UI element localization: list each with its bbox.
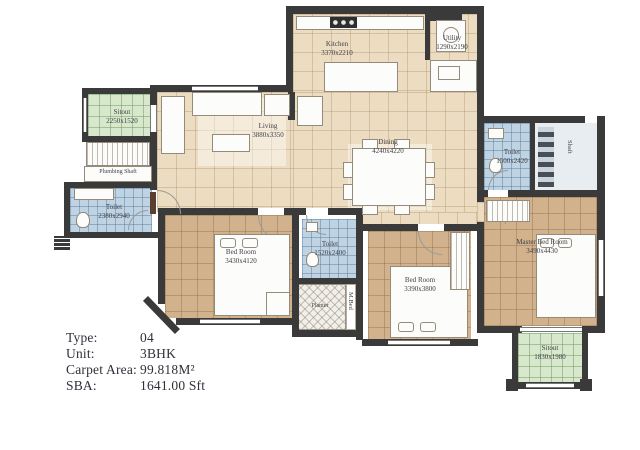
info-row-carpet-area: Carpet Area: 99.818M² xyxy=(66,362,205,378)
info-label: Carpet Area: xyxy=(66,362,140,378)
wall xyxy=(298,278,362,284)
wall xyxy=(477,116,585,123)
window xyxy=(388,340,450,345)
french-door xyxy=(150,105,157,132)
corridor-floor xyxy=(362,212,477,224)
chair xyxy=(394,139,410,149)
wall xyxy=(356,212,363,340)
wall xyxy=(64,182,70,238)
shaft-hatch xyxy=(538,127,554,187)
entry-step xyxy=(54,236,70,250)
wall xyxy=(530,123,535,190)
stove-icon xyxy=(330,17,357,28)
wall xyxy=(292,330,362,337)
chair xyxy=(343,184,353,200)
kitchen-island xyxy=(324,62,398,92)
kitchen-counter xyxy=(296,16,424,30)
planter-floor xyxy=(298,284,346,330)
plumbing-shaft-box xyxy=(84,166,152,182)
sink xyxy=(438,66,460,80)
window xyxy=(83,98,87,132)
armchair xyxy=(264,94,290,116)
sitout-left-floor xyxy=(88,94,150,136)
window xyxy=(200,319,260,324)
wall xyxy=(477,326,522,333)
info-row-type: Type: 04 xyxy=(66,330,205,346)
pillow xyxy=(220,238,236,248)
unit-info: Type: 04 Unit: 3BHK Carpet Area: 99.818M… xyxy=(66,330,205,394)
door-gap xyxy=(418,224,444,231)
chair xyxy=(425,184,435,200)
info-row-sba: SBA: 1641.00 Sft xyxy=(66,378,205,394)
fridge xyxy=(297,96,323,126)
wall xyxy=(64,232,160,238)
sofa xyxy=(192,92,262,116)
sliding-door xyxy=(520,327,582,332)
chair xyxy=(343,162,353,178)
pillow xyxy=(420,322,436,332)
wardrobe xyxy=(450,232,470,290)
chair xyxy=(362,205,378,215)
washbasin xyxy=(488,128,504,139)
window xyxy=(526,383,574,388)
info-value: 04 xyxy=(140,330,205,346)
shoe-rack xyxy=(86,142,150,166)
coffee-table xyxy=(212,134,250,152)
info-value: 99.818M² xyxy=(140,362,205,378)
pillow xyxy=(540,238,554,248)
chair xyxy=(425,162,435,178)
washer-icon xyxy=(443,27,459,43)
toilet-wc xyxy=(489,158,502,173)
vanity-counter xyxy=(74,188,114,200)
window xyxy=(598,240,604,296)
entry-door-leaf xyxy=(150,192,156,214)
toilet-wc xyxy=(306,252,319,267)
post xyxy=(506,379,518,391)
wall xyxy=(582,326,605,333)
info-row-unit: Unit: 3BHK xyxy=(66,346,205,362)
info-label: Type: xyxy=(66,330,140,346)
info-label: SBA: xyxy=(66,378,140,394)
info-value: 1641.00 Sft xyxy=(140,378,205,394)
dresser xyxy=(266,292,290,316)
pillow xyxy=(242,238,258,248)
window xyxy=(192,86,258,91)
master-entry-floor xyxy=(477,202,484,222)
info-value: 3BHK xyxy=(140,346,205,362)
wall xyxy=(158,208,165,304)
door-gap xyxy=(488,190,508,197)
wall xyxy=(292,208,299,337)
info-label: Unit: xyxy=(66,346,140,362)
wall xyxy=(82,88,152,94)
sitout-right-floor xyxy=(518,333,582,384)
washbasin xyxy=(306,222,318,232)
chair xyxy=(362,139,378,149)
door-gap xyxy=(306,208,328,215)
wall xyxy=(477,222,484,326)
wardrobe xyxy=(486,200,530,222)
post xyxy=(580,379,592,391)
wall xyxy=(286,6,293,92)
sofa xyxy=(161,96,185,154)
floor-plan: Kitchen3370x2210 Utility1290x2190 Living… xyxy=(0,0,640,450)
pillow xyxy=(558,238,572,248)
pillow xyxy=(398,322,414,332)
dining-table xyxy=(352,148,426,206)
door-gap xyxy=(258,208,284,215)
wall xyxy=(477,6,484,202)
mbed-passage xyxy=(346,284,356,330)
wall xyxy=(597,116,605,333)
chair xyxy=(394,205,410,215)
toilet-wc xyxy=(76,212,90,228)
